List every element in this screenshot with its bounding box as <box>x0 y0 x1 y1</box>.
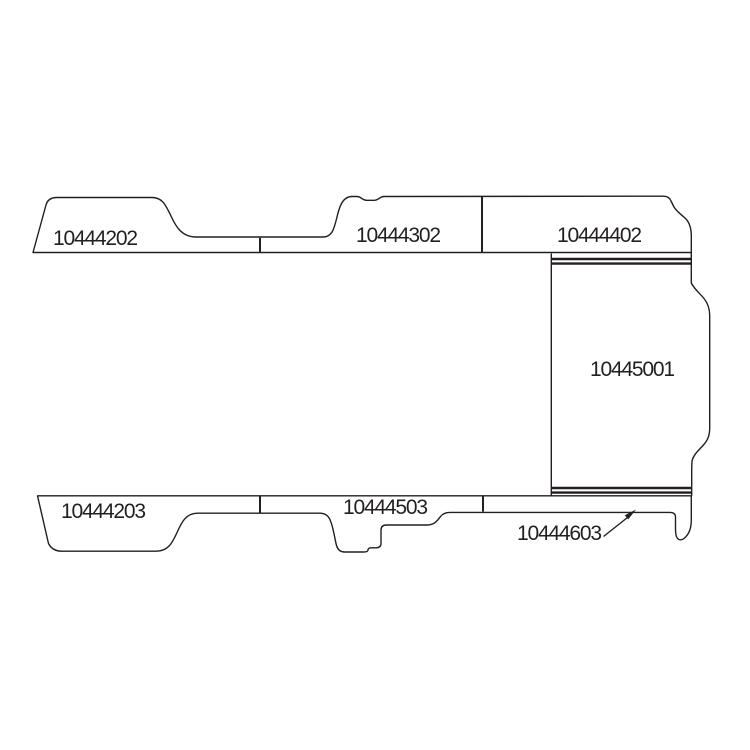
leader-line <box>604 518 628 537</box>
part-number-label: 10445001 <box>590 359 674 380</box>
part-number-label: 10444202 <box>53 228 137 249</box>
part-number-label: 10444302 <box>356 225 440 246</box>
part-number-label: 10444503 <box>343 497 427 518</box>
part-number-label: 10444402 <box>557 225 641 246</box>
parts-diagram-canvas: 10444202 10444302 10444402 10445001 1044… <box>0 0 750 750</box>
part-number-label: 10444603 <box>517 523 601 544</box>
part-number-label: 10444203 <box>61 501 145 522</box>
large-panel-right-contour <box>691 253 709 496</box>
